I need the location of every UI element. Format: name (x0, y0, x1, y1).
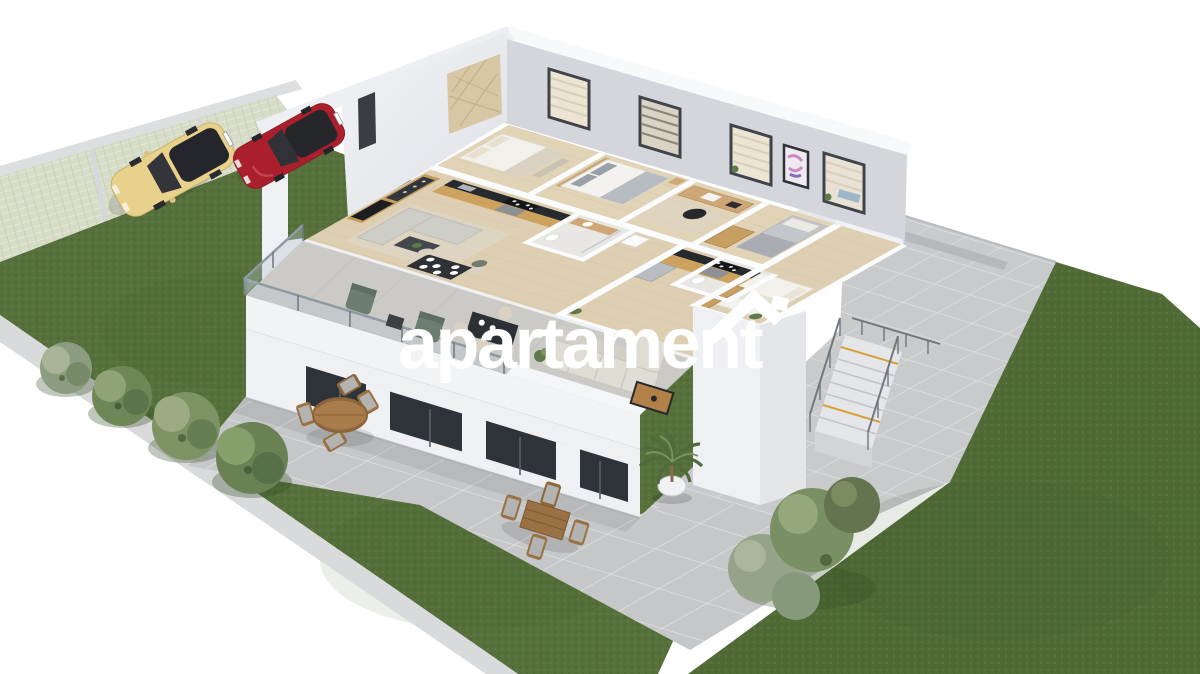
window-3 (731, 125, 771, 185)
doorway-dark (358, 92, 376, 150)
scene-svg: apartament (0, 0, 1200, 674)
lawn-shade (830, 480, 1170, 640)
watermark-text: apartament (398, 304, 764, 384)
window-2 (640, 97, 680, 157)
window-4 (824, 153, 864, 213)
sill-plant (825, 194, 832, 201)
watermark: apartament (398, 295, 789, 384)
window-1 (549, 69, 589, 129)
glazing-pier (462, 413, 486, 466)
wing-east-face (760, 311, 806, 505)
sill-plant (732, 166, 739, 173)
render-canvas: apartament (0, 0, 1200, 674)
wall-art (784, 145, 808, 188)
